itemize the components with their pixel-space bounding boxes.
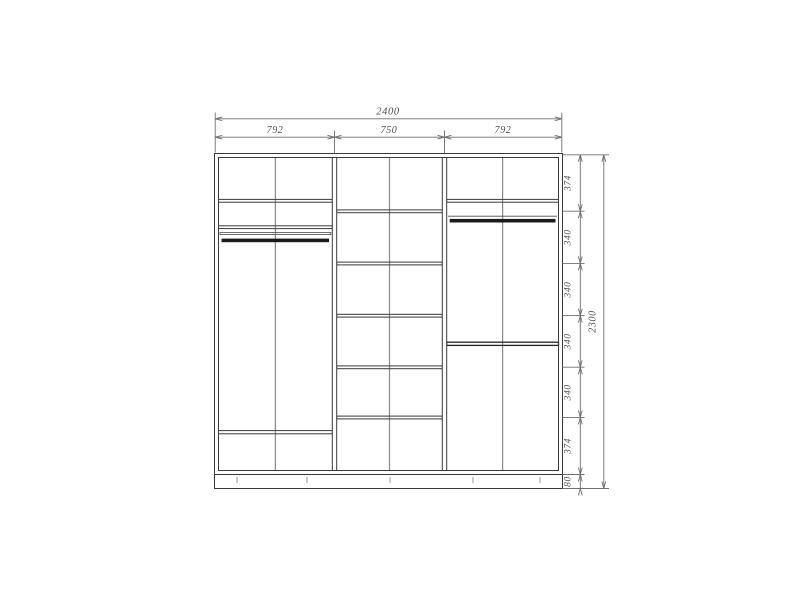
hanging-rod — [222, 239, 330, 243]
dim-label-h2: 340 — [564, 229, 574, 246]
dim-label-h3: 340 — [564, 281, 574, 298]
dim-label-total-height: 2300 — [588, 310, 599, 332]
dim-label-h6: 374 — [564, 438, 574, 455]
dimensions-top: 2400 792 750 792 — [215, 107, 562, 154]
partition-wall — [442, 158, 446, 471]
dim-label-total-width: 2400 — [376, 107, 400, 118]
cabinet-body — [215, 154, 563, 489]
dim-label-section-3: 792 — [495, 125, 512, 136]
dim-label-h5: 340 — [564, 384, 574, 401]
dim-label-h4: 340 — [564, 333, 574, 350]
plinth-band — [215, 475, 563, 489]
dim-label-section-1: 792 — [267, 125, 284, 136]
dim-label-section-2: 750 — [381, 125, 398, 136]
wardrobe-technical-drawing: 2400 792 750 792 374 340 340 340 340 374… — [0, 0, 800, 600]
partition-wall — [332, 158, 336, 471]
drawing-canvas: 2400 792 750 792 374 340 340 340 340 374… — [0, 0, 800, 600]
dimensions-right: 374 340 340 340 340 374 80 2300 — [563, 155, 610, 496]
dim-label-h1: 374 — [564, 175, 574, 192]
hanging-rod — [450, 219, 556, 223]
plinth — [215, 475, 563, 489]
dim-label-h7: 80 — [564, 476, 574, 487]
